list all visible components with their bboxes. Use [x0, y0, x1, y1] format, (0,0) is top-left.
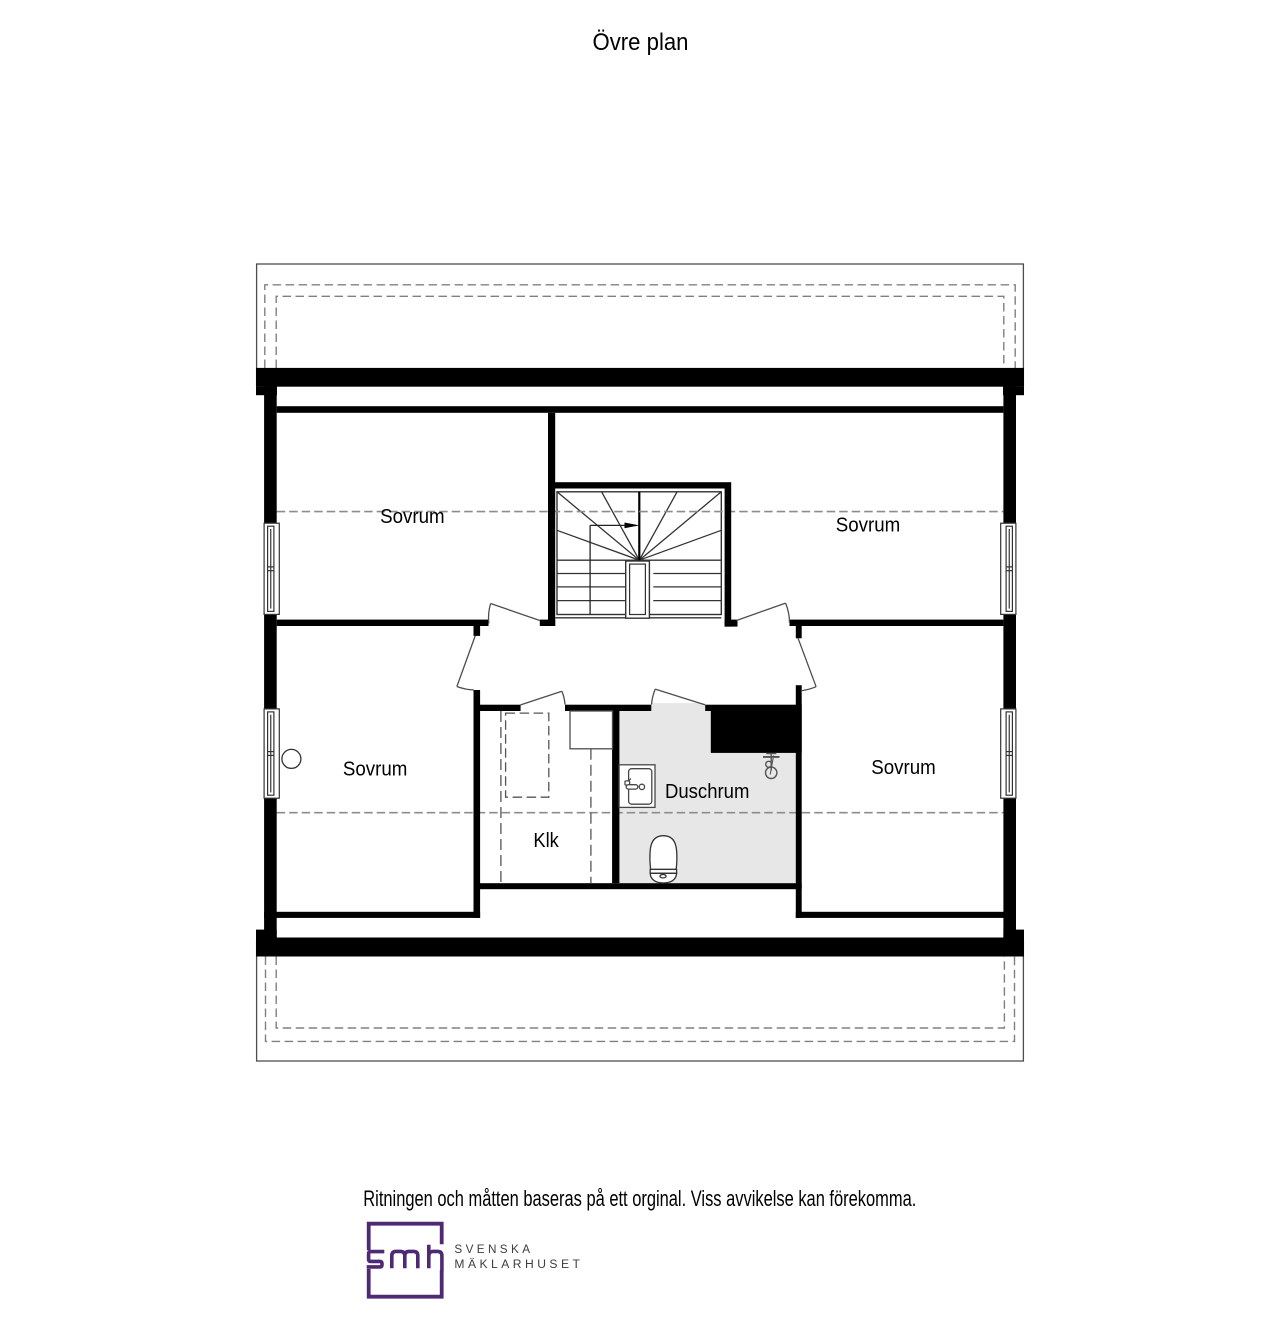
svg-text:Övre plan: Övre plan: [593, 29, 689, 56]
svg-text:MÄKLARHUSET: MÄKLARHUSET: [454, 1259, 583, 1271]
svg-text:Sovrum: Sovrum: [380, 506, 445, 528]
svg-text:Sovrum: Sovrum: [871, 757, 936, 779]
svg-text:Ritningen och måtten baseras p: Ritningen och måtten baseras på ett orgi…: [363, 1186, 916, 1211]
svg-text:Klk: Klk: [533, 830, 559, 852]
svg-text:Duschrum: Duschrum: [665, 781, 749, 803]
svg-text:SVENSKA: SVENSKA: [454, 1244, 533, 1256]
svg-text:Sovrum: Sovrum: [836, 514, 901, 536]
svg-text:Sovrum: Sovrum: [343, 759, 408, 781]
